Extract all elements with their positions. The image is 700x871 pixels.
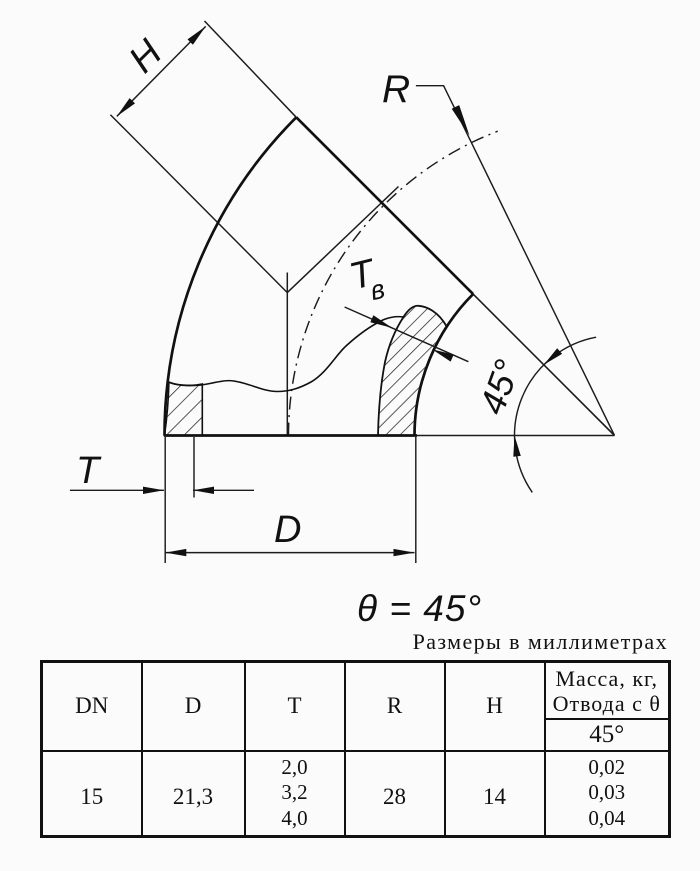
svg-text:H: H [121,32,170,81]
svg-text:45°: 45° [471,354,528,419]
svg-text:D: D [274,509,301,551]
svg-text:в: в [367,274,388,307]
svg-text:R: R [382,68,410,111]
svg-text:T: T [76,450,102,492]
